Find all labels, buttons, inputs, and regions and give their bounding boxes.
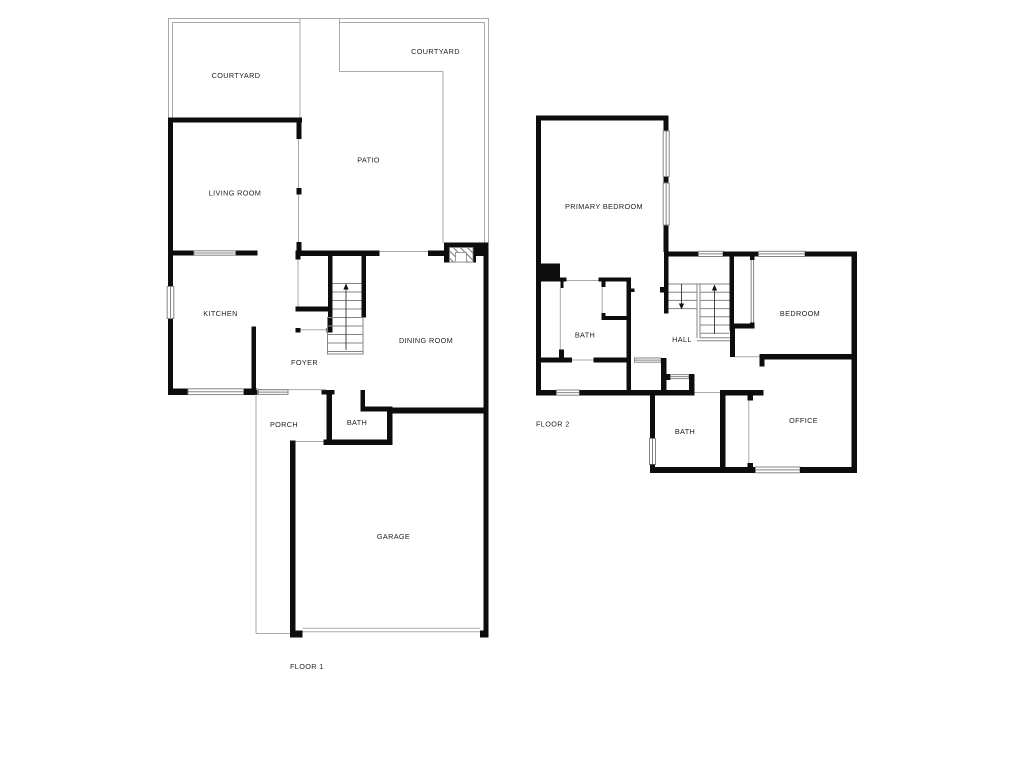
svg-text:BEDROOM: BEDROOM	[780, 309, 820, 318]
svg-text:KITCHEN: KITCHEN	[203, 309, 237, 318]
svg-text:PRIMARY BEDROOM: PRIMARY BEDROOM	[565, 202, 643, 211]
svg-text:BATH: BATH	[675, 427, 695, 436]
svg-text:OFFICE: OFFICE	[789, 416, 818, 425]
svg-text:LIVING ROOM: LIVING ROOM	[209, 189, 262, 198]
svg-text:COURTYARD: COURTYARD	[212, 71, 261, 80]
svg-text:DINING ROOM: DINING ROOM	[399, 336, 453, 345]
svg-text:COURTYARD: COURTYARD	[411, 47, 460, 56]
svg-text:BATH: BATH	[575, 331, 595, 340]
svg-text:FLOOR 1: FLOOR 1	[290, 662, 324, 671]
svg-text:BATH: BATH	[347, 418, 367, 427]
svg-text:GARAGE: GARAGE	[377, 532, 410, 541]
svg-text:FLOOR 2: FLOOR 2	[536, 420, 570, 429]
svg-text:PORCH: PORCH	[270, 420, 298, 429]
svg-text:PATIO: PATIO	[357, 156, 380, 165]
svg-text:HALL: HALL	[672, 335, 692, 344]
svg-text:FOYER: FOYER	[291, 358, 318, 367]
